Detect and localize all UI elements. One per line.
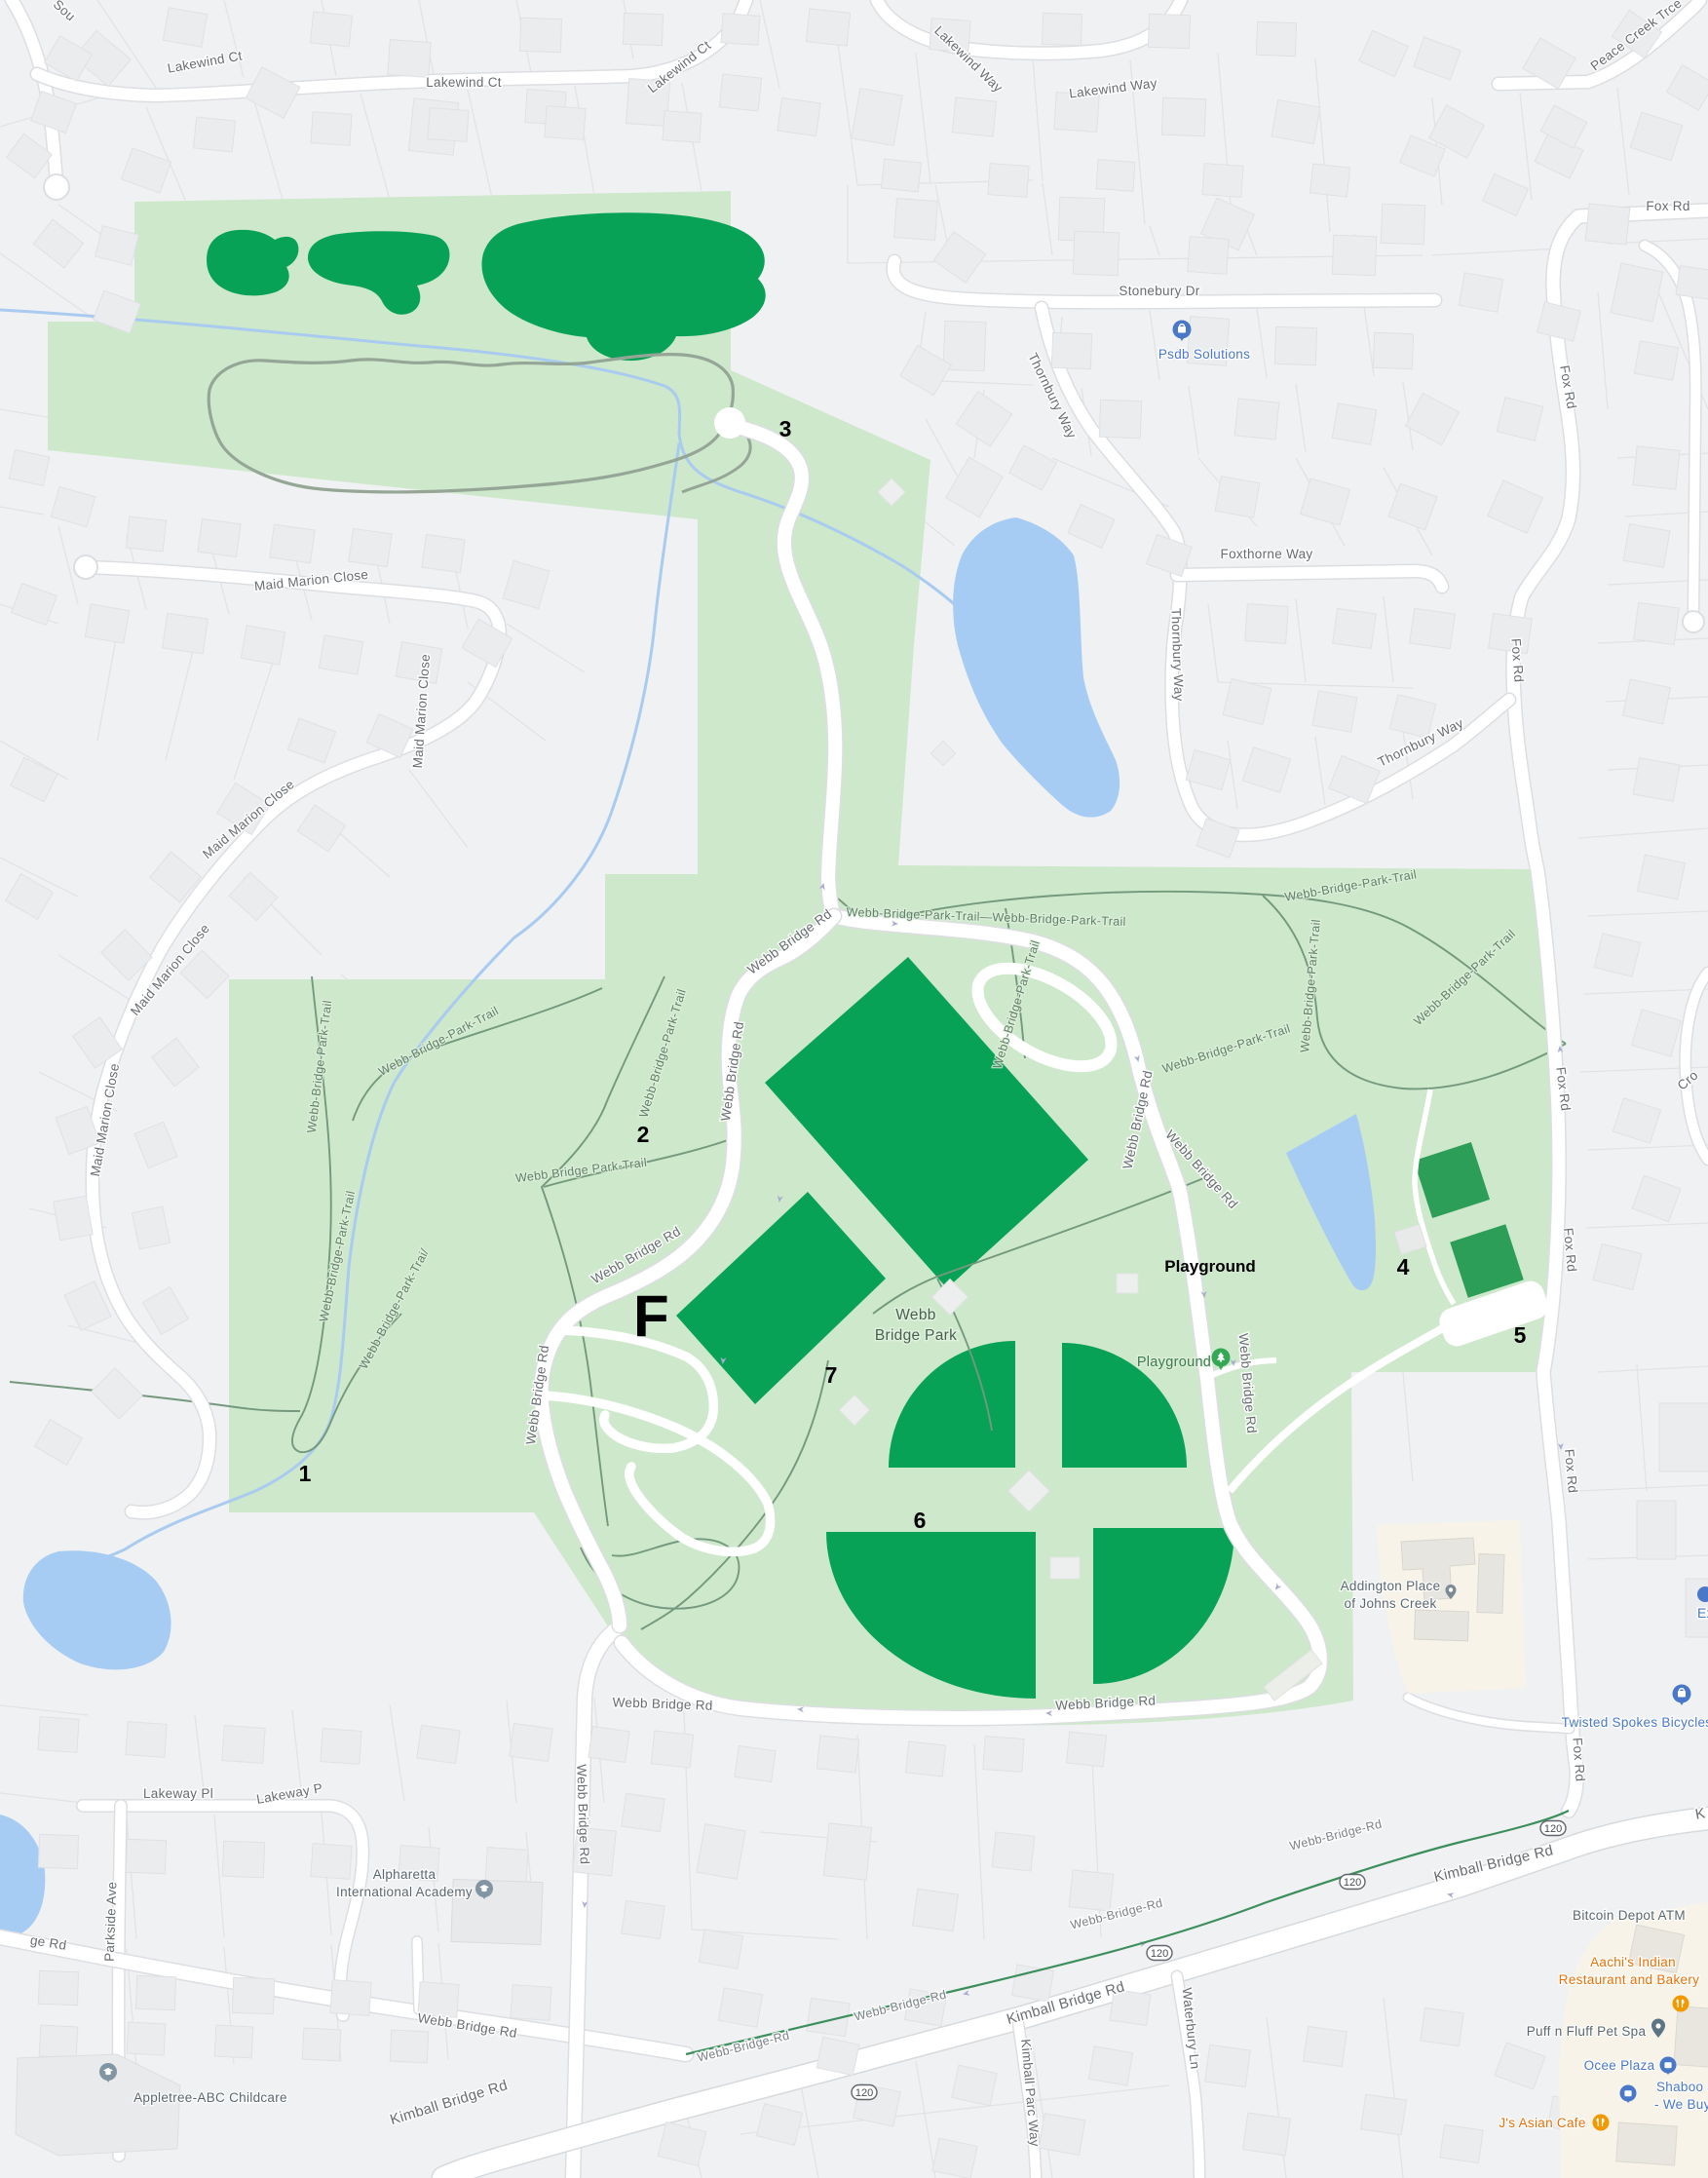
svg-text:5: 5 xyxy=(1514,1322,1527,1348)
svg-text:Puff n Fluff Pet Spa: Puff n Fluff Pet Spa xyxy=(1527,2024,1647,2039)
svg-text:1: 1 xyxy=(299,1461,312,1486)
svg-text:3: 3 xyxy=(779,416,792,441)
svg-text:Psdb Solutions: Psdb Solutions xyxy=(1158,347,1250,362)
svg-text:Ext: Ext xyxy=(1697,1605,1708,1621)
svg-text:Twisted Spokes Bicycles: Twisted Spokes Bicycles xyxy=(1562,1715,1708,1730)
svg-text:Foxthorne Way: Foxthorne Way xyxy=(1221,547,1313,561)
svg-text:6: 6 xyxy=(914,1508,927,1533)
svg-text:J's Asian Cafe: J's Asian Cafe xyxy=(1499,2116,1585,2130)
svg-text:Shaboo Jew: Shaboo Jew xyxy=(1656,2080,1708,2094)
svg-text:Lakeway Pl: Lakeway Pl xyxy=(143,1786,213,1801)
svg-text:Aachi's Indian: Aachi's Indian xyxy=(1590,1955,1676,1969)
svg-text:4: 4 xyxy=(1397,1254,1410,1280)
svg-text:Fox Rd: Fox Rd xyxy=(1570,1738,1587,1782)
svg-text:of Johns Creek: of Johns Creek xyxy=(1345,1596,1437,1611)
svg-text:Appletree-ABC Childcare: Appletree-ABC Childcare xyxy=(133,2090,287,2105)
svg-text:Webb: Webb xyxy=(895,1307,935,1323)
svg-text:Bitcoin Depot ATM: Bitcoin Depot ATM xyxy=(1573,1908,1686,1923)
svg-text:Fox Rd: Fox Rd xyxy=(1508,638,1526,683)
svg-text:- We Buy Go: - We Buy Go xyxy=(1654,2097,1708,2112)
svg-text:Fox Rd: Fox Rd xyxy=(1646,199,1689,213)
svg-text:Playground: Playground xyxy=(1137,1355,1211,1370)
svg-text:120: 120 xyxy=(1151,1948,1168,1960)
svg-text:2: 2 xyxy=(637,1122,650,1147)
svg-text:120: 120 xyxy=(1344,1877,1361,1889)
svg-text:International Academy: International Academy xyxy=(336,1885,473,1899)
svg-text:Alpharetta: Alpharetta xyxy=(373,1867,436,1882)
svg-text:120: 120 xyxy=(855,2087,873,2099)
svg-text:Stonebury Dr: Stonebury Dr xyxy=(1119,284,1199,298)
svg-text:Restaurant and Bakery: Restaurant and Bakery xyxy=(1559,1972,1699,1987)
svg-text:F: F xyxy=(633,1283,669,1349)
svg-text:120: 120 xyxy=(1544,1823,1562,1835)
svg-text:7: 7 xyxy=(825,1362,838,1388)
svg-text:Lakewind Ct: Lakewind Ct xyxy=(426,75,502,90)
svg-text:Parkside Ave: Parkside Ave xyxy=(102,1882,120,1963)
svg-text:Playground: Playground xyxy=(1164,1257,1256,1276)
svg-text:Addington Place: Addington Place xyxy=(1341,1579,1441,1593)
svg-text:Ocee Plaza: Ocee Plaza xyxy=(1584,2058,1655,2073)
svg-text:Bridge Park: Bridge Park xyxy=(875,1327,957,1344)
